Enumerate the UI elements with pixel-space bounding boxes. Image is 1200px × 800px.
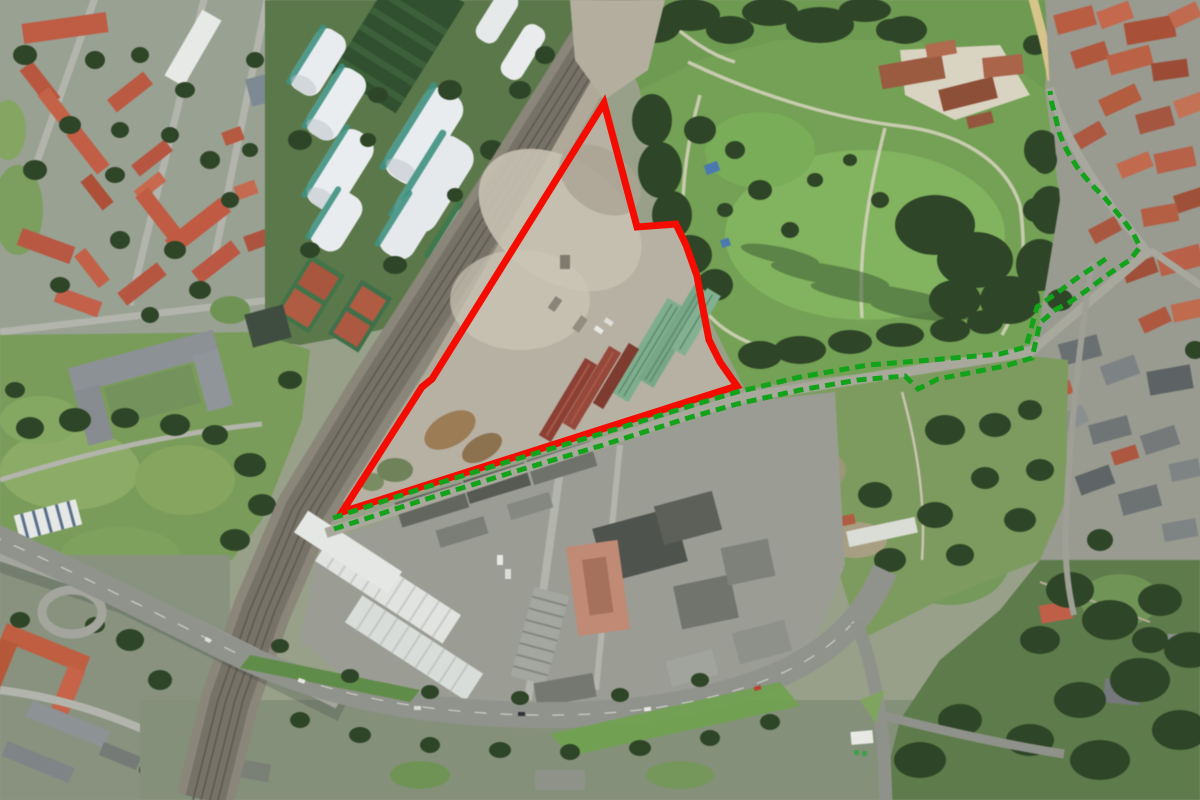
region-residential-northwest (0, 0, 299, 345)
terrain-layer (0, 0, 1200, 800)
gas-station (850, 730, 873, 745)
satellite-map (0, 0, 1200, 800)
